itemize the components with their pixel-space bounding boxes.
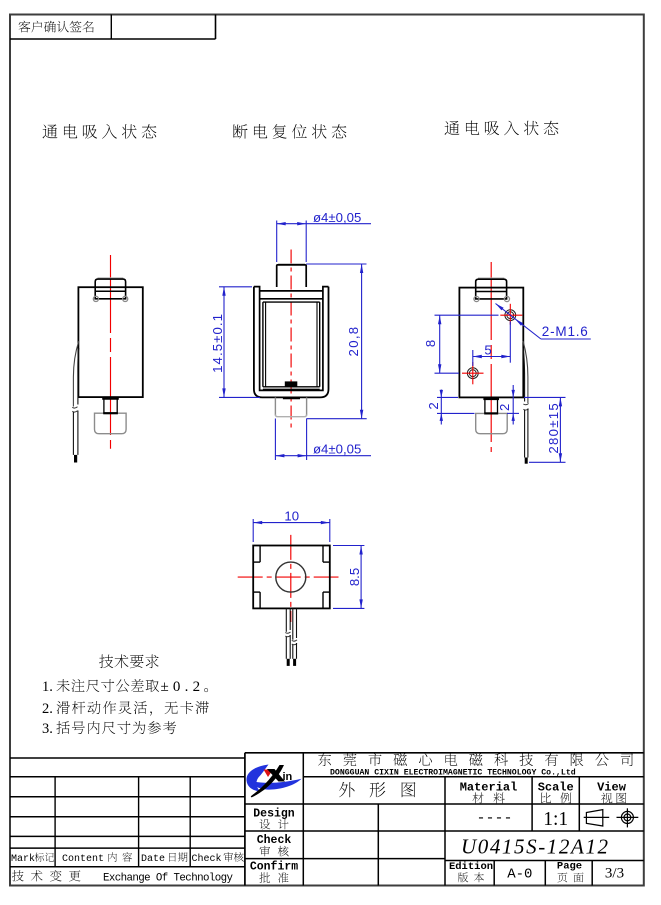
svg-text:±0.2: ±0.2 [161,679,205,695]
svg-text:Design: Design [253,808,295,821]
svg-text:10: 10 [284,509,299,524]
svg-text:14.5±0.1: 14.5±0.1 [210,313,225,373]
svg-text:Check: Check [192,853,222,865]
svg-text:Confirm: Confirm [250,861,298,874]
svg-text:2-M1.6: 2-M1.6 [542,324,589,339]
svg-text:A-0: A-0 [507,867,532,883]
svg-text:2: 2 [497,404,512,411]
svg-text:1:1: 1:1 [543,809,568,830]
svg-text:ø4±0,05: ø4±0,05 [313,442,361,457]
svg-text:DONGGUAN CIXIN ELECTROIMAGN: DONGGUAN CIXIN ELECTROIMAGNETIC TECHNOLO… [330,768,576,778]
svg-text:----: ---- [476,810,512,827]
svg-text:Scale: Scale [538,781,574,795]
svg-text:5: 5 [484,343,491,358]
svg-text:2: 2 [426,402,441,409]
svg-text:8: 8 [423,340,438,347]
svg-text:280±15: 280±15 [546,402,561,454]
svg-text:Page: Page [557,861,582,873]
svg-text:Mark: Mark [11,853,35,865]
svg-text:Edition: Edition [449,861,493,873]
svg-text:in: in [283,771,293,783]
svg-text:Exchange Of Technology: Exchange Of Technology [103,873,233,885]
svg-text:8.5: 8.5 [347,568,362,586]
svg-text:20,8: 20,8 [346,326,361,357]
svg-text:Content: Content [62,854,104,865]
svg-text:2.: 2. [42,701,53,717]
svg-text:3.: 3. [42,721,53,737]
svg-text:3/3: 3/3 [605,866,624,882]
svg-text:ø4±0,05: ø4±0,05 [313,210,361,225]
svg-text:U0415S-12A12: U0415S-12A12 [461,835,610,859]
svg-text:View: View [597,781,627,795]
svg-text:Check: Check [257,834,292,847]
svg-text:Date: Date [141,854,165,865]
svg-text:1.: 1. [42,679,53,695]
svg-text:Material: Material [460,781,518,795]
